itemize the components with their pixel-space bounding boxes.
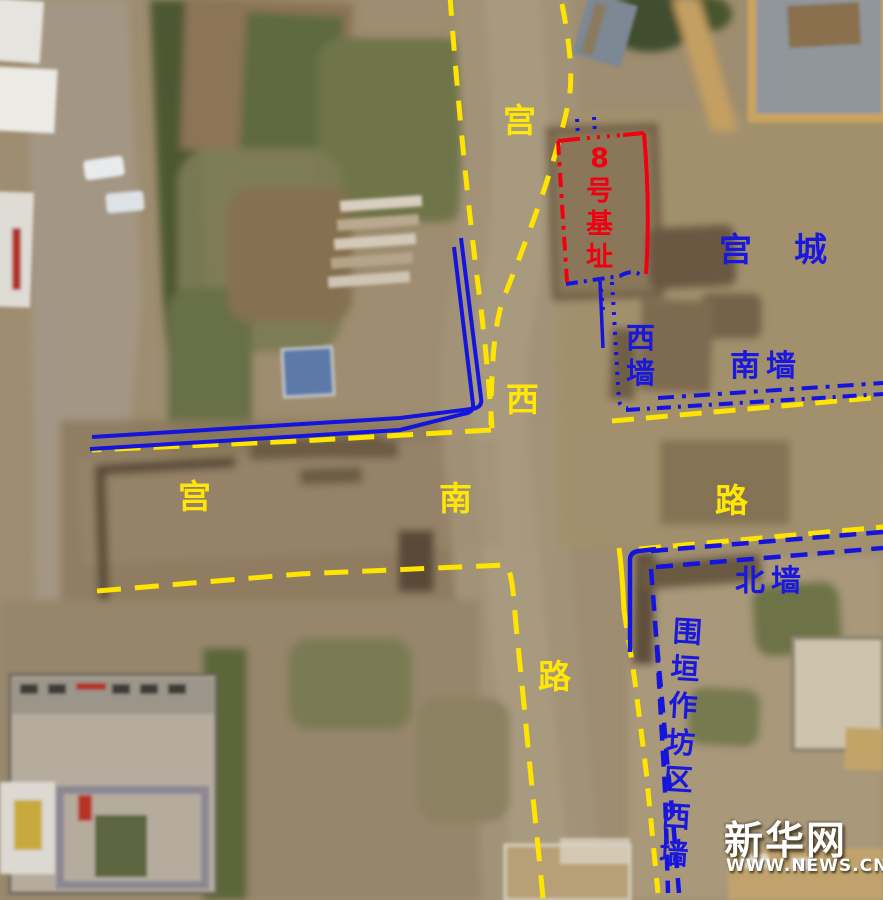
road-label-gongxilu-char1: 宫 — [503, 104, 536, 137]
palace-west-wall-label: 西墙 — [626, 321, 655, 391]
foundation-8-label: 8号基址 — [586, 142, 613, 274]
palace-south-wall-label: 南墙 — [730, 352, 802, 382]
road-label-gongnanlu-char1: 宫 — [178, 480, 211, 513]
road-label-gongxilu-char3: 路 — [538, 660, 571, 693]
annotated-aerial-photo: 宫 西 路 宫 南 路 宫城 西墙 南墙 北墙 围垣作坊区西墙 8号基址 新华网… — [0, 0, 883, 900]
site-photo-and-overlay — [0, 0, 883, 900]
road-label-gongnanlu-char2: 南 — [439, 482, 472, 515]
palace-city-label: 宫城 — [719, 233, 869, 266]
red-top-edge-solid-left — [558, 139, 577, 141]
road-label-gongxilu-char2: 西 — [506, 383, 539, 416]
xinhua-watermark-url: WWW.NEWS.CN — [726, 856, 876, 876]
enclosure-north-wall-label: 北墙 — [735, 567, 807, 597]
road-label-gongnanlu-char3: 路 — [715, 484, 748, 517]
red-top-edge-solid-right — [623, 133, 644, 135]
